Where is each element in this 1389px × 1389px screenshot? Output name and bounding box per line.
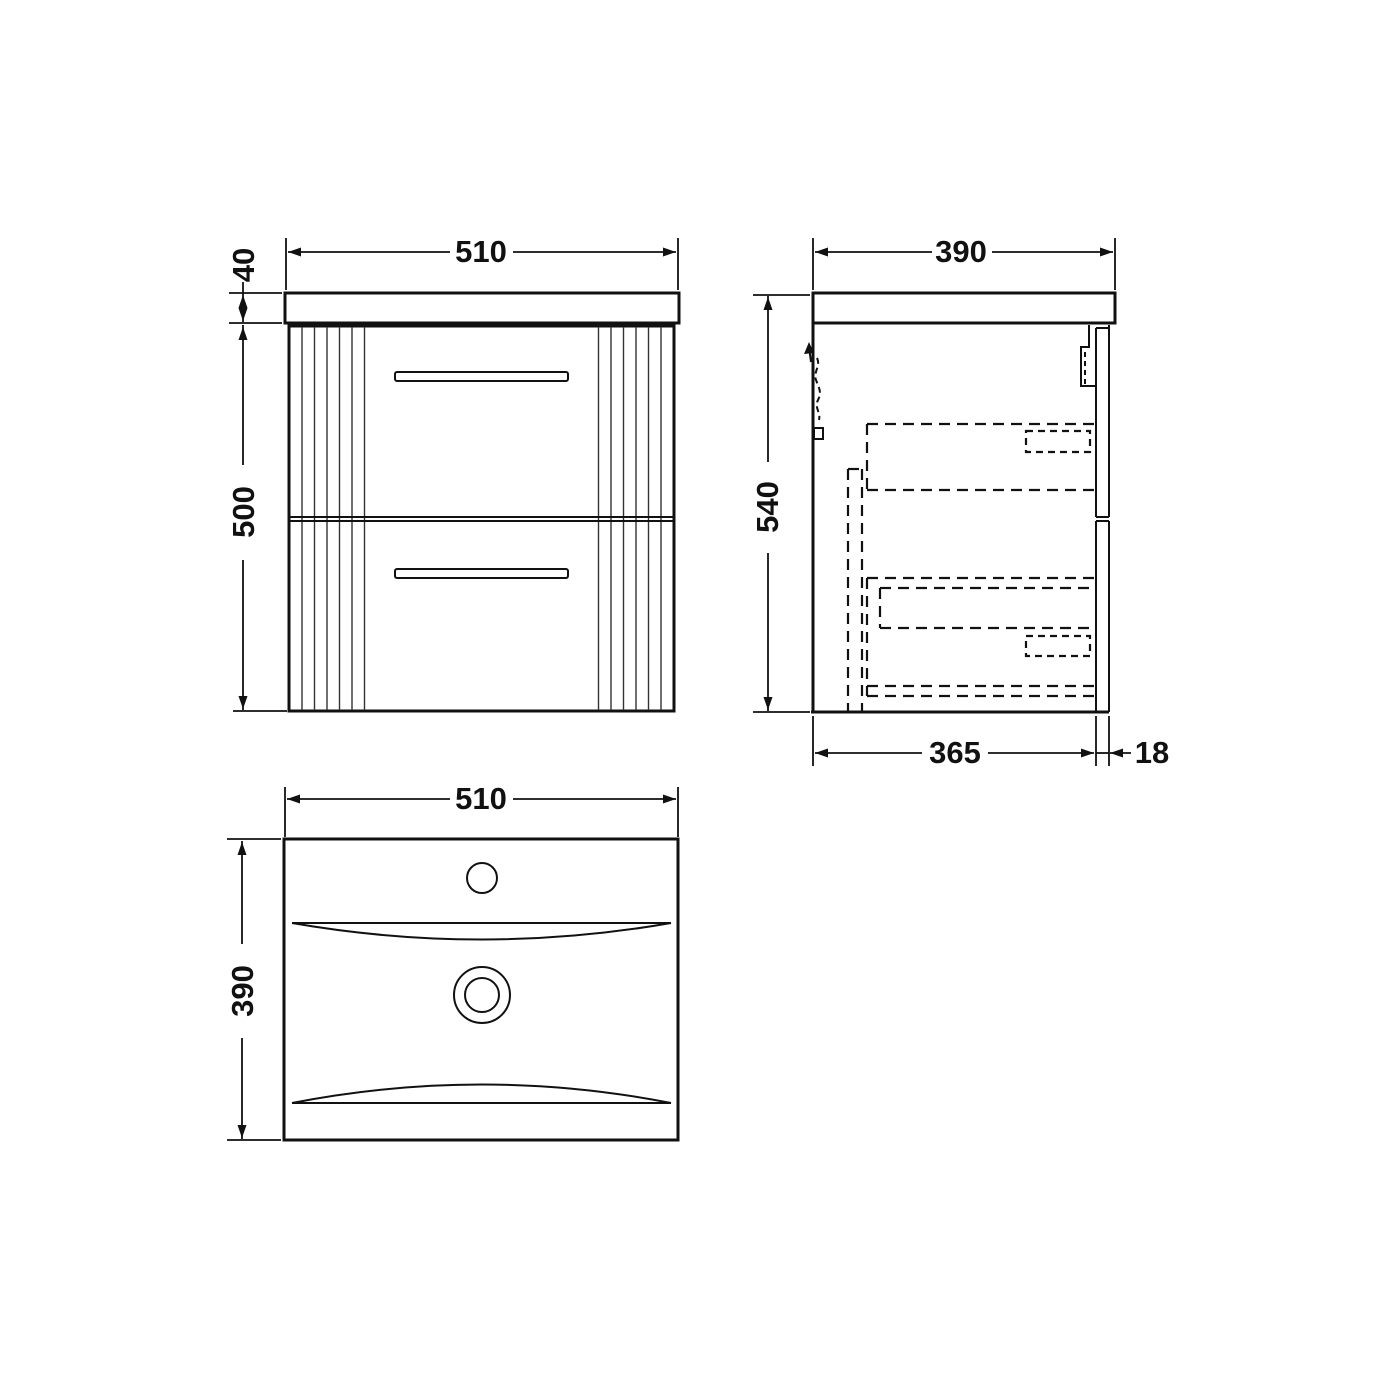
- waste-trap-hidden: [848, 469, 862, 711]
- fluted-panel-right: [599, 327, 662, 710]
- waste-hole: [454, 967, 510, 1023]
- basin-front-curve: [292, 1085, 671, 1104]
- side-worktop: [813, 293, 1115, 323]
- side-carcass-depth-label: 365: [929, 735, 981, 770]
- upper-drawer-runner: [1026, 431, 1090, 452]
- lower-drawer-hidden: [867, 578, 1095, 696]
- front-worktop: [285, 293, 679, 323]
- vanity-dimension-diagram: 510 40 500: [0, 0, 1389, 1389]
- plan-width-label: 510: [455, 781, 507, 816]
- side-view: 390 540: [750, 234, 1169, 770]
- tap-hole: [467, 863, 497, 893]
- side-drawer-fronts: [1096, 325, 1109, 712]
- front-worktop-thickness-label: 40: [226, 248, 261, 282]
- front-cabinet-body: [289, 326, 674, 711]
- front-width-label: 510: [455, 234, 507, 269]
- plan-depth-label: 390: [225, 965, 260, 1017]
- top-drawer-handle: [395, 372, 568, 381]
- technical-drawing-page: 510 40 500: [0, 0, 1389, 1389]
- basin-back-ledge: [292, 923, 671, 940]
- bottom-drawer-handle: [395, 569, 568, 578]
- plan-depth-dimension: 390: [225, 839, 281, 1140]
- side-depth-dimension: 390: [813, 234, 1115, 290]
- front-view: 510 40 500: [226, 234, 679, 711]
- front-worktop-thickness-dimension: 40: [226, 248, 282, 323]
- lower-drawer-runner: [1026, 636, 1090, 656]
- side-height-dimension: 540: [750, 295, 810, 712]
- plan-width-dimension: 510: [285, 781, 678, 837]
- front-height-label: 500: [226, 486, 261, 538]
- side-bottom-dimensions: 365 18: [813, 716, 1169, 770]
- side-height-label: 540: [750, 481, 785, 533]
- drawer-divider: [289, 517, 674, 521]
- plan-view: 510 390: [225, 781, 678, 1140]
- side-depth-label: 390: [935, 234, 987, 269]
- upper-drawer-hidden: [867, 424, 1095, 490]
- front-height-dimension: 500: [226, 325, 287, 711]
- fluted-panel-left: [302, 327, 365, 710]
- side-front-thickness-label: 18: [1135, 735, 1169, 770]
- side-top-rail-notch: [1081, 325, 1096, 386]
- front-width-dimension: 510: [286, 234, 678, 290]
